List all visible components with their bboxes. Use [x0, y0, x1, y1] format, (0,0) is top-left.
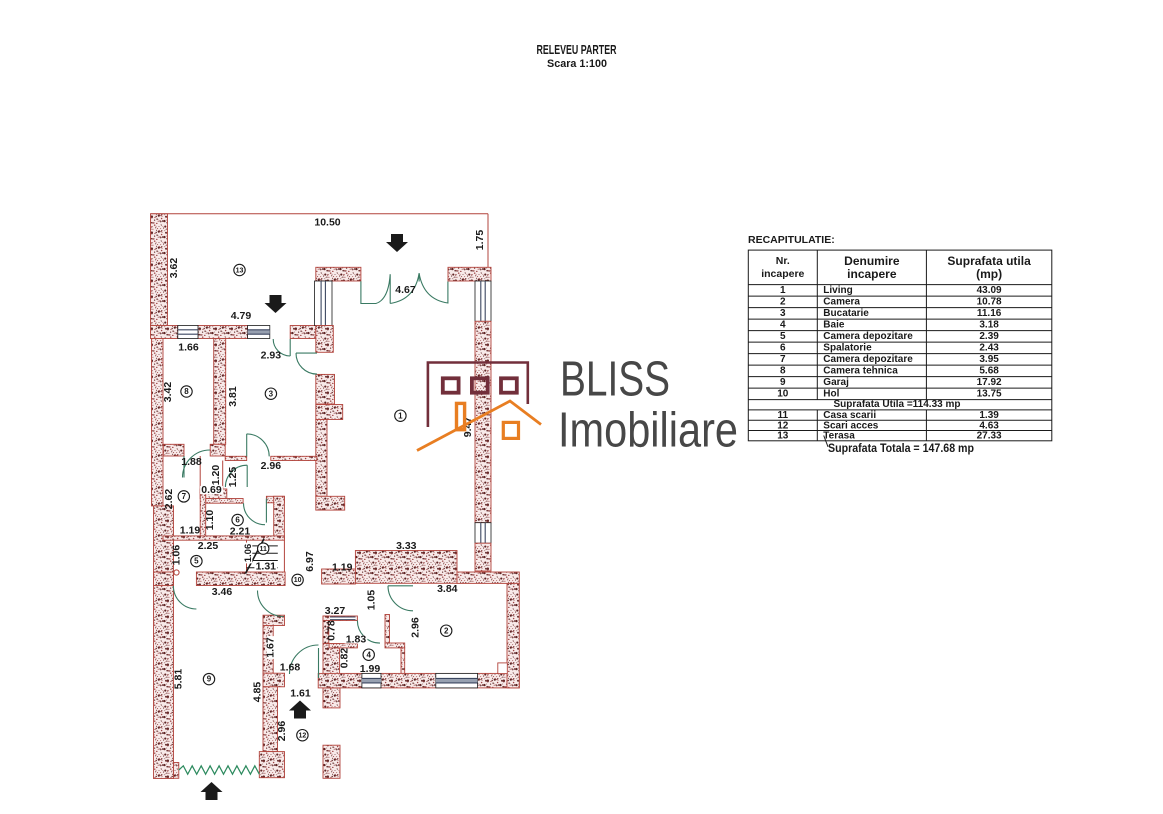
svg-text:4.85: 4.85 — [252, 682, 264, 703]
svg-text:Bucatarie: Bucatarie — [823, 308, 869, 319]
svg-text:Suprafata Utila =114.33 mp: Suprafata Utila =114.33 mp — [833, 399, 960, 410]
svg-text:2.62: 2.62 — [163, 489, 175, 510]
svg-text:13.75: 13.75 — [977, 389, 1002, 400]
svg-text:4: 4 — [366, 650, 371, 659]
svg-text:2.39: 2.39 — [979, 331, 999, 342]
svg-text:incapere: incapere — [761, 268, 804, 280]
svg-text:1.75: 1.75 — [474, 230, 486, 251]
svg-text:6: 6 — [235, 516, 240, 525]
svg-text:Denumire: Denumire — [844, 254, 900, 268]
svg-text:3.33: 3.33 — [396, 540, 417, 552]
svg-text:17.92: 17.92 — [977, 377, 1002, 388]
svg-text:10.50: 10.50 — [314, 216, 340, 228]
svg-text:Suprafata utila: Suprafata utila — [947, 254, 1031, 268]
svg-text:Baie: Baie — [823, 320, 845, 331]
svg-text:2.96: 2.96 — [261, 460, 282, 472]
svg-text:Living: Living — [823, 285, 852, 296]
svg-text:1.20: 1.20 — [210, 465, 222, 486]
svg-text:7: 7 — [182, 492, 187, 501]
svg-text:RECAPITULATIE:: RECAPITULATIE: — [748, 234, 835, 246]
svg-text:1: 1 — [780, 285, 786, 296]
svg-text:5: 5 — [194, 557, 199, 566]
svg-text:2.25: 2.25 — [198, 540, 219, 552]
svg-text:incapere: incapere — [847, 267, 897, 281]
svg-text:1.06: 1.06 — [170, 545, 182, 566]
svg-text:6: 6 — [780, 343, 786, 354]
svg-text:3: 3 — [269, 389, 274, 398]
svg-text:0.69: 0.69 — [201, 484, 222, 496]
svg-text:1.99: 1.99 — [360, 663, 381, 675]
svg-text:1.88: 1.88 — [181, 456, 202, 468]
svg-text:10: 10 — [294, 577, 302, 584]
svg-text:27.33: 27.33 — [977, 431, 1002, 442]
svg-text:12: 12 — [299, 733, 307, 740]
svg-text:13: 13 — [236, 267, 244, 274]
svg-text:(mp): (mp) — [976, 267, 1002, 281]
svg-text:1.67: 1.67 — [264, 637, 276, 658]
svg-text:1.31: 1.31 — [256, 561, 277, 573]
svg-text:11.16: 11.16 — [977, 308, 1002, 319]
svg-text:13: 13 — [777, 431, 789, 442]
svg-text:2.96: 2.96 — [409, 617, 421, 638]
svg-text:1.05: 1.05 — [365, 590, 377, 611]
svg-text:1.61: 1.61 — [290, 687, 311, 699]
svg-text:3.46: 3.46 — [212, 586, 233, 598]
svg-text:1: 1 — [398, 411, 403, 420]
svg-text:5.81: 5.81 — [173, 669, 185, 690]
svg-text:Camera depozitare: Camera depozitare — [823, 331, 913, 342]
svg-text:5: 5 — [780, 331, 786, 342]
svg-text:2: 2 — [444, 626, 449, 635]
svg-text:Scara 1:100: Scara 1:100 — [547, 58, 607, 70]
svg-text:4.79: 4.79 — [231, 310, 252, 322]
svg-text:10: 10 — [777, 389, 789, 400]
svg-text:Camera tehnica: Camera tehnica — [823, 366, 898, 377]
svg-text:1.19: 1.19 — [332, 561, 353, 573]
svg-text:9: 9 — [780, 377, 786, 388]
svg-text:8: 8 — [780, 366, 786, 377]
svg-text:Nr.: Nr. — [776, 255, 790, 267]
svg-text:1.68: 1.68 — [280, 661, 301, 673]
svg-text:2.21: 2.21 — [230, 525, 251, 537]
svg-text:2.93: 2.93 — [261, 349, 282, 361]
svg-text:3.81: 3.81 — [227, 386, 239, 407]
svg-text:4.67: 4.67 — [395, 284, 416, 296]
svg-text:11: 11 — [259, 546, 267, 553]
svg-text:Camera depozitare: Camera depozitare — [823, 354, 913, 365]
svg-text:Imobiliare: Imobiliare — [558, 404, 738, 458]
svg-text:3.18: 3.18 — [979, 320, 999, 331]
svg-text:6.97: 6.97 — [304, 551, 316, 572]
svg-text:3: 3 — [780, 308, 786, 319]
svg-text:0.78: 0.78 — [326, 620, 338, 641]
svg-text:5.68: 5.68 — [979, 366, 999, 377]
svg-text:Suprafata Totala = 147.68 mp: Suprafata Totala = 147.68 mp — [828, 441, 974, 455]
svg-text:3.27: 3.27 — [325, 605, 346, 617]
svg-text:3.84: 3.84 — [437, 583, 458, 595]
svg-text:1.06: 1.06 — [243, 544, 254, 563]
svg-text:8: 8 — [184, 387, 189, 396]
svg-text:10.78: 10.78 — [977, 297, 1002, 308]
svg-text:1.66: 1.66 — [178, 341, 199, 353]
svg-text:1.10: 1.10 — [204, 510, 216, 531]
svg-text:0.82: 0.82 — [338, 648, 350, 669]
svg-text:1.25: 1.25 — [227, 467, 239, 488]
svg-text:BLISS: BLISS — [560, 353, 670, 407]
svg-text:1.83: 1.83 — [346, 633, 367, 645]
svg-text:4: 4 — [780, 320, 786, 331]
svg-text:Spalatorie: Spalatorie — [823, 343, 872, 354]
svg-text:3.95: 3.95 — [979, 354, 999, 365]
svg-text:Camera: Camera — [823, 297, 860, 308]
svg-text:2.43: 2.43 — [979, 343, 999, 354]
svg-text:7: 7 — [780, 354, 786, 365]
svg-text:9: 9 — [207, 675, 212, 684]
svg-text:2: 2 — [780, 297, 786, 308]
svg-text:1.19: 1.19 — [180, 524, 201, 536]
svg-text:43.09: 43.09 — [977, 285, 1002, 296]
svg-text:RELEVEU PARTER: RELEVEU PARTER — [537, 42, 617, 57]
svg-text:2.96: 2.96 — [276, 721, 288, 742]
svg-text:Terasa: Terasa — [823, 431, 855, 442]
svg-text:3.62: 3.62 — [168, 258, 180, 279]
svg-text:Garaj: Garaj — [823, 377, 849, 388]
svg-text:3.42: 3.42 — [162, 382, 174, 403]
